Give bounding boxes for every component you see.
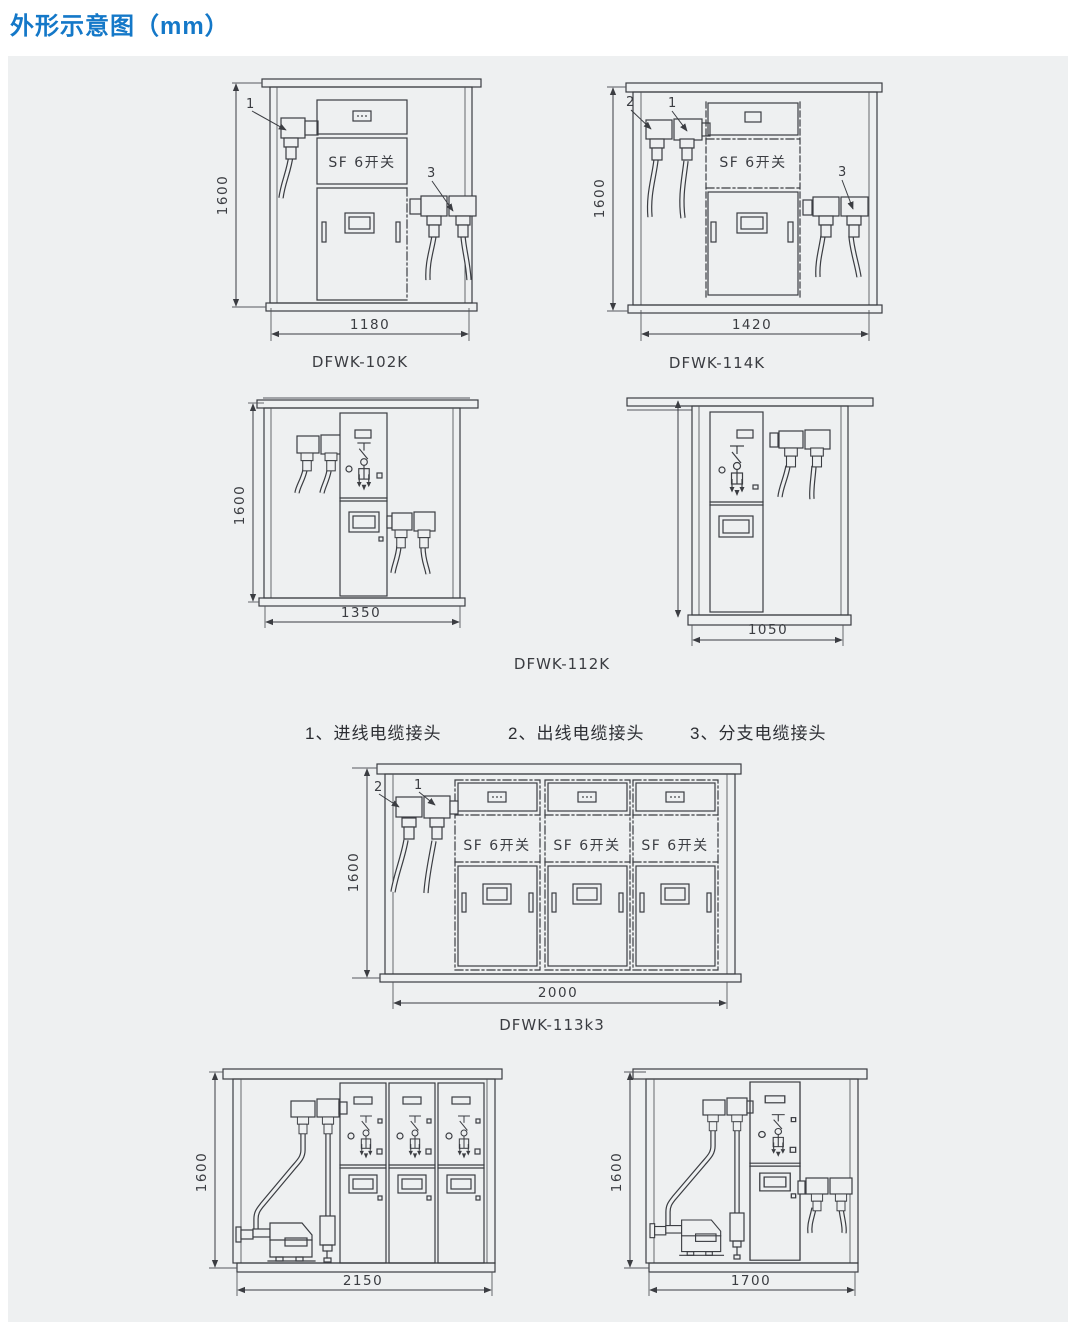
drawing-dfwk-112k: 1600 1350 DFWK-112K <box>232 398 610 673</box>
cabinet-outline <box>223 1069 502 1272</box>
callout-1: 1 <box>414 778 422 793</box>
callout-1: 1 <box>668 96 676 111</box>
callout-2: 2 <box>626 95 634 110</box>
legend-item-2: 2、出线电缆接头 <box>508 719 644 744</box>
model-label: DFWK-102K <box>312 353 408 371</box>
incoming-assembly <box>236 1099 347 1262</box>
callout-3: 3 <box>838 165 846 180</box>
cable-connector-out-in <box>393 796 458 893</box>
height-dim-text: 1600 <box>232 485 248 525</box>
dimension-height: 1600 <box>592 87 628 311</box>
dimension-height: 1600 <box>609 1072 649 1268</box>
fuse-cylinder-icon <box>320 1216 335 1245</box>
width-dim-text: 1050 <box>748 622 788 638</box>
height-dim-text: 1600 <box>346 852 362 892</box>
model-label: DFWK-113k3 <box>499 1016 605 1034</box>
incoming-assembly <box>650 1098 753 1259</box>
drawing-dfwk-102k: SF 6开关 1 3 1600 1180 DFWK-102K <box>215 79 481 371</box>
drawing-2150: 1600 2150 <box>194 1069 502 1296</box>
width-dim-text: 1700 <box>731 1273 771 1289</box>
sf6-switch-label: SF 6开关 <box>328 155 395 171</box>
callout-2: 2 <box>374 780 382 795</box>
model-label: DFWK-112K <box>514 655 610 673</box>
dimension-width: 1420 <box>641 310 869 341</box>
width-dim-text: 2000 <box>538 985 578 1001</box>
cable-connector-incoming <box>297 435 342 493</box>
fuse-cylinder-icon <box>730 1213 744 1241</box>
height-dim-text: 1600 <box>592 178 608 218</box>
legend-item-1: 1、进线电缆接头 <box>305 719 441 744</box>
dimension-width: 1700 <box>649 1272 855 1296</box>
width-dim-text: 1350 <box>341 605 381 621</box>
cable-connector-incoming <box>281 118 318 198</box>
dimension-height: 1600 <box>232 403 264 602</box>
dimension-height: 1600 <box>194 1072 237 1268</box>
equipment-boxes: SF 6开关 <box>706 102 800 297</box>
model-label: DFWK-114K <box>669 354 765 372</box>
drawings-canvas: SF 6开关 <box>0 0 1074 1329</box>
height-dim-text: 1600 <box>609 1152 625 1192</box>
equipment-boxes: SF 6开关 <box>317 100 407 300</box>
cable-connector-out-in <box>646 119 710 218</box>
callout-3: 3 <box>427 166 435 181</box>
dimension-width: 1350 <box>265 605 460 628</box>
height-dim-text: 1600 <box>215 175 231 215</box>
drawing-dfwk-114k: SF 6开关 2 1 3 1600 1420 DFWK-114K <box>592 83 882 372</box>
cable-connector-branch <box>410 196 476 280</box>
width-dim-text: 1180 <box>350 317 390 333</box>
sf6-switch-label: SF 6开关 <box>719 155 786 171</box>
legend-item-3: 3、分支电缆接头 <box>690 719 826 744</box>
cable-connector-branch <box>798 1178 852 1233</box>
switch-panel <box>710 412 763 612</box>
dimension-width: 1180 <box>271 308 469 341</box>
dimension-width: 2150 <box>237 1272 492 1296</box>
callout-1: 1 <box>246 97 254 112</box>
cable-connector-branch <box>387 512 435 574</box>
drawing-side-view: 1050 <box>627 398 873 646</box>
dimension-height: 1600 <box>215 83 266 307</box>
drawing-dfwk-113k3: 2 1 1600 2000 DFWK-113k3 <box>346 764 741 1034</box>
width-dim-text: 2150 <box>343 1273 383 1289</box>
dimension-width: 2000 <box>393 982 727 1009</box>
height-dim-text: 1600 <box>194 1152 210 1192</box>
switch-panel <box>340 413 387 596</box>
dimension-height: 1600 <box>346 768 380 978</box>
width-dim-text: 1420 <box>732 317 772 333</box>
cable-connector-branch <box>770 430 830 499</box>
cable-connector-branch <box>803 197 868 277</box>
drawing-1700: 1600 1700 <box>609 1069 867 1296</box>
